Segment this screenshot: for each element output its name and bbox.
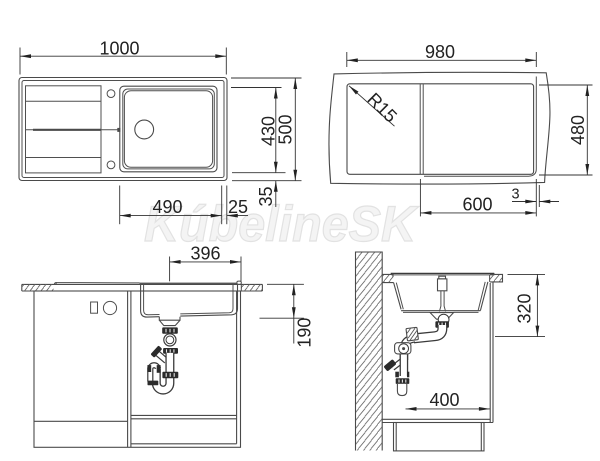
svg-text:490: 490	[152, 197, 182, 217]
svg-text:600: 600	[462, 195, 492, 215]
svg-text:396: 396	[190, 243, 220, 263]
svg-text:190: 190	[295, 318, 315, 348]
svg-text:KúbelineSK: KúbelineSK	[144, 196, 420, 252]
svg-text:980: 980	[425, 42, 455, 62]
svg-text:35: 35	[256, 186, 276, 206]
svg-text:320: 320	[515, 293, 535, 323]
svg-text:500: 500	[276, 114, 296, 144]
svg-text:480: 480	[568, 115, 588, 145]
svg-text:3: 3	[511, 186, 519, 202]
svg-text:400: 400	[429, 390, 459, 410]
svg-text:25: 25	[228, 197, 248, 217]
svg-text:1000: 1000	[99, 39, 139, 59]
